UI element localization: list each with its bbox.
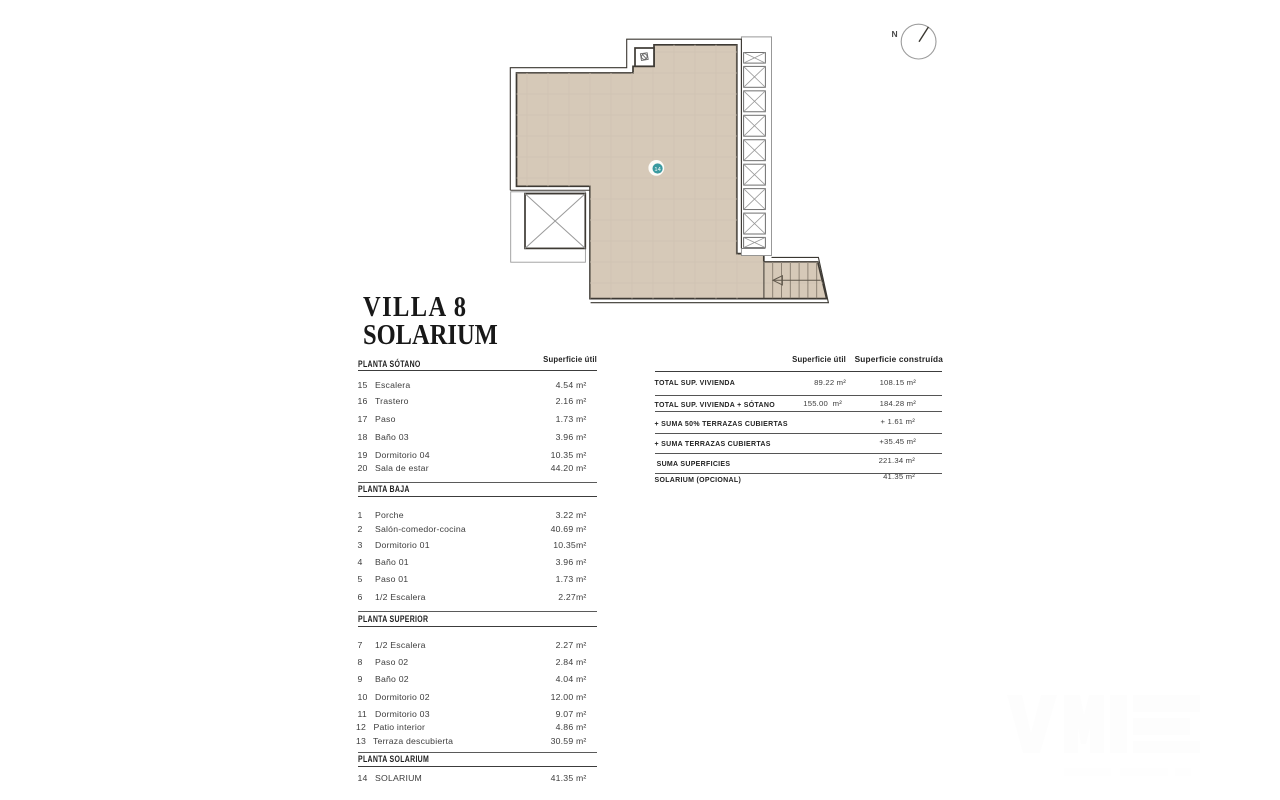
svg-text:N: N <box>892 29 898 39</box>
svg-text:14: 14 <box>654 167 661 173</box>
